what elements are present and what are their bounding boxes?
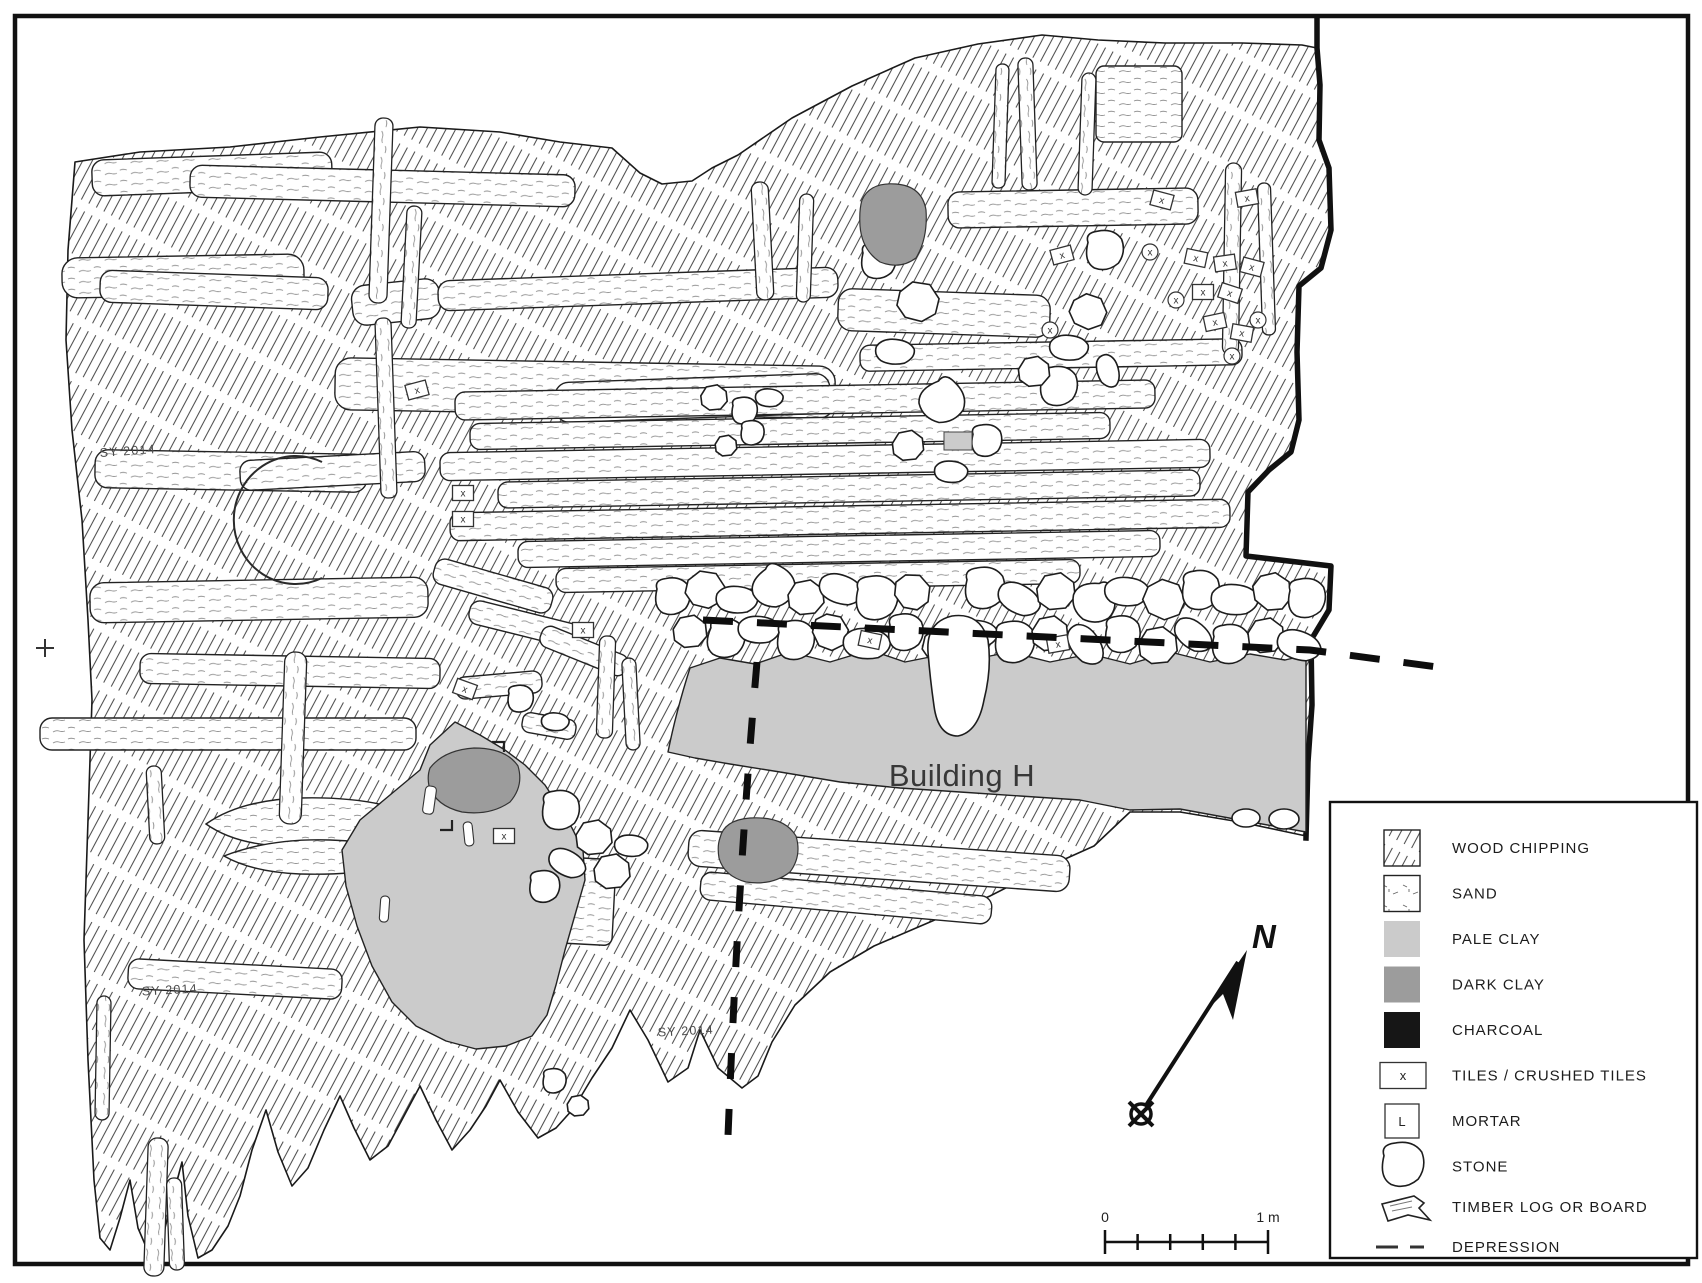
scale-zero-label: 0 <box>1101 1209 1109 1225</box>
tile-marker: x <box>1256 316 1261 327</box>
stone-in-clay <box>1232 809 1260 827</box>
scale-bar: 0 1 m <box>1101 1209 1280 1254</box>
legend-item-label: CHARCOAL <box>1452 1022 1543 1039</box>
tile-marker: x <box>1048 326 1053 337</box>
tiles-symbol: x <box>1400 1068 1407 1083</box>
survey-cross-mark <box>36 639 54 657</box>
tile-marker: x <box>461 489 466 500</box>
tile-marker: x <box>1201 288 1206 299</box>
tile-marker: x <box>1230 352 1235 363</box>
tile-marker: x <box>581 626 586 637</box>
stone-swatch-icon <box>1382 1142 1423 1186</box>
legend-item-label: MORTAR <box>1452 1113 1522 1130</box>
site-code-label: SY 2014 <box>141 982 198 999</box>
tile-marker: x <box>461 515 466 526</box>
dark-clay-in-pale-patch <box>428 748 520 813</box>
building-h-label: Building H <box>889 758 1035 793</box>
pale-clay-swatch-icon <box>1384 921 1420 957</box>
stone-in-clay <box>1269 809 1299 829</box>
dark-clay-swatch-icon <box>1384 967 1420 1003</box>
legend-item-label: SAND <box>1452 886 1498 903</box>
north-arrow: N <box>1129 918 1277 1126</box>
wood-chipping-swatch-icon <box>1384 830 1420 866</box>
site-plan-canvas: Building H <box>0 0 1702 1283</box>
charcoal-swatch-icon <box>1384 1012 1420 1048</box>
site-code-label: SY 2014 <box>657 1023 714 1040</box>
legend-item-label: STONE <box>1452 1159 1508 1176</box>
mortar-symbol: L <box>1398 1114 1405 1129</box>
legend-item-label: TIMBER LOG OR BOARD <box>1452 1199 1648 1216</box>
pale-clay-fragment <box>944 432 972 450</box>
north-label: N <box>1252 918 1277 955</box>
legend: WOOD CHIPPING SAND PALE CLAY DARK CLAY C… <box>1330 802 1697 1258</box>
legend-item-label: DEPRESSION <box>1452 1239 1560 1256</box>
legend-item-label: TILES / CRUSHED TILES <box>1452 1068 1647 1085</box>
sand-swatch-icon <box>1384 876 1420 912</box>
legend-item-label: PALE CLAY <box>1452 931 1540 948</box>
tile-marker: x <box>1148 248 1153 259</box>
scale-meter-label: 1 m <box>1256 1209 1279 1225</box>
tile-marker: x <box>502 832 507 843</box>
legend-item-label: WOOD CHIPPING <box>1452 840 1590 857</box>
legend-item-label: DARK CLAY <box>1452 977 1545 994</box>
excavation-plan-figure: Building H <box>0 0 1702 1283</box>
tile-marker: x <box>1174 296 1179 307</box>
